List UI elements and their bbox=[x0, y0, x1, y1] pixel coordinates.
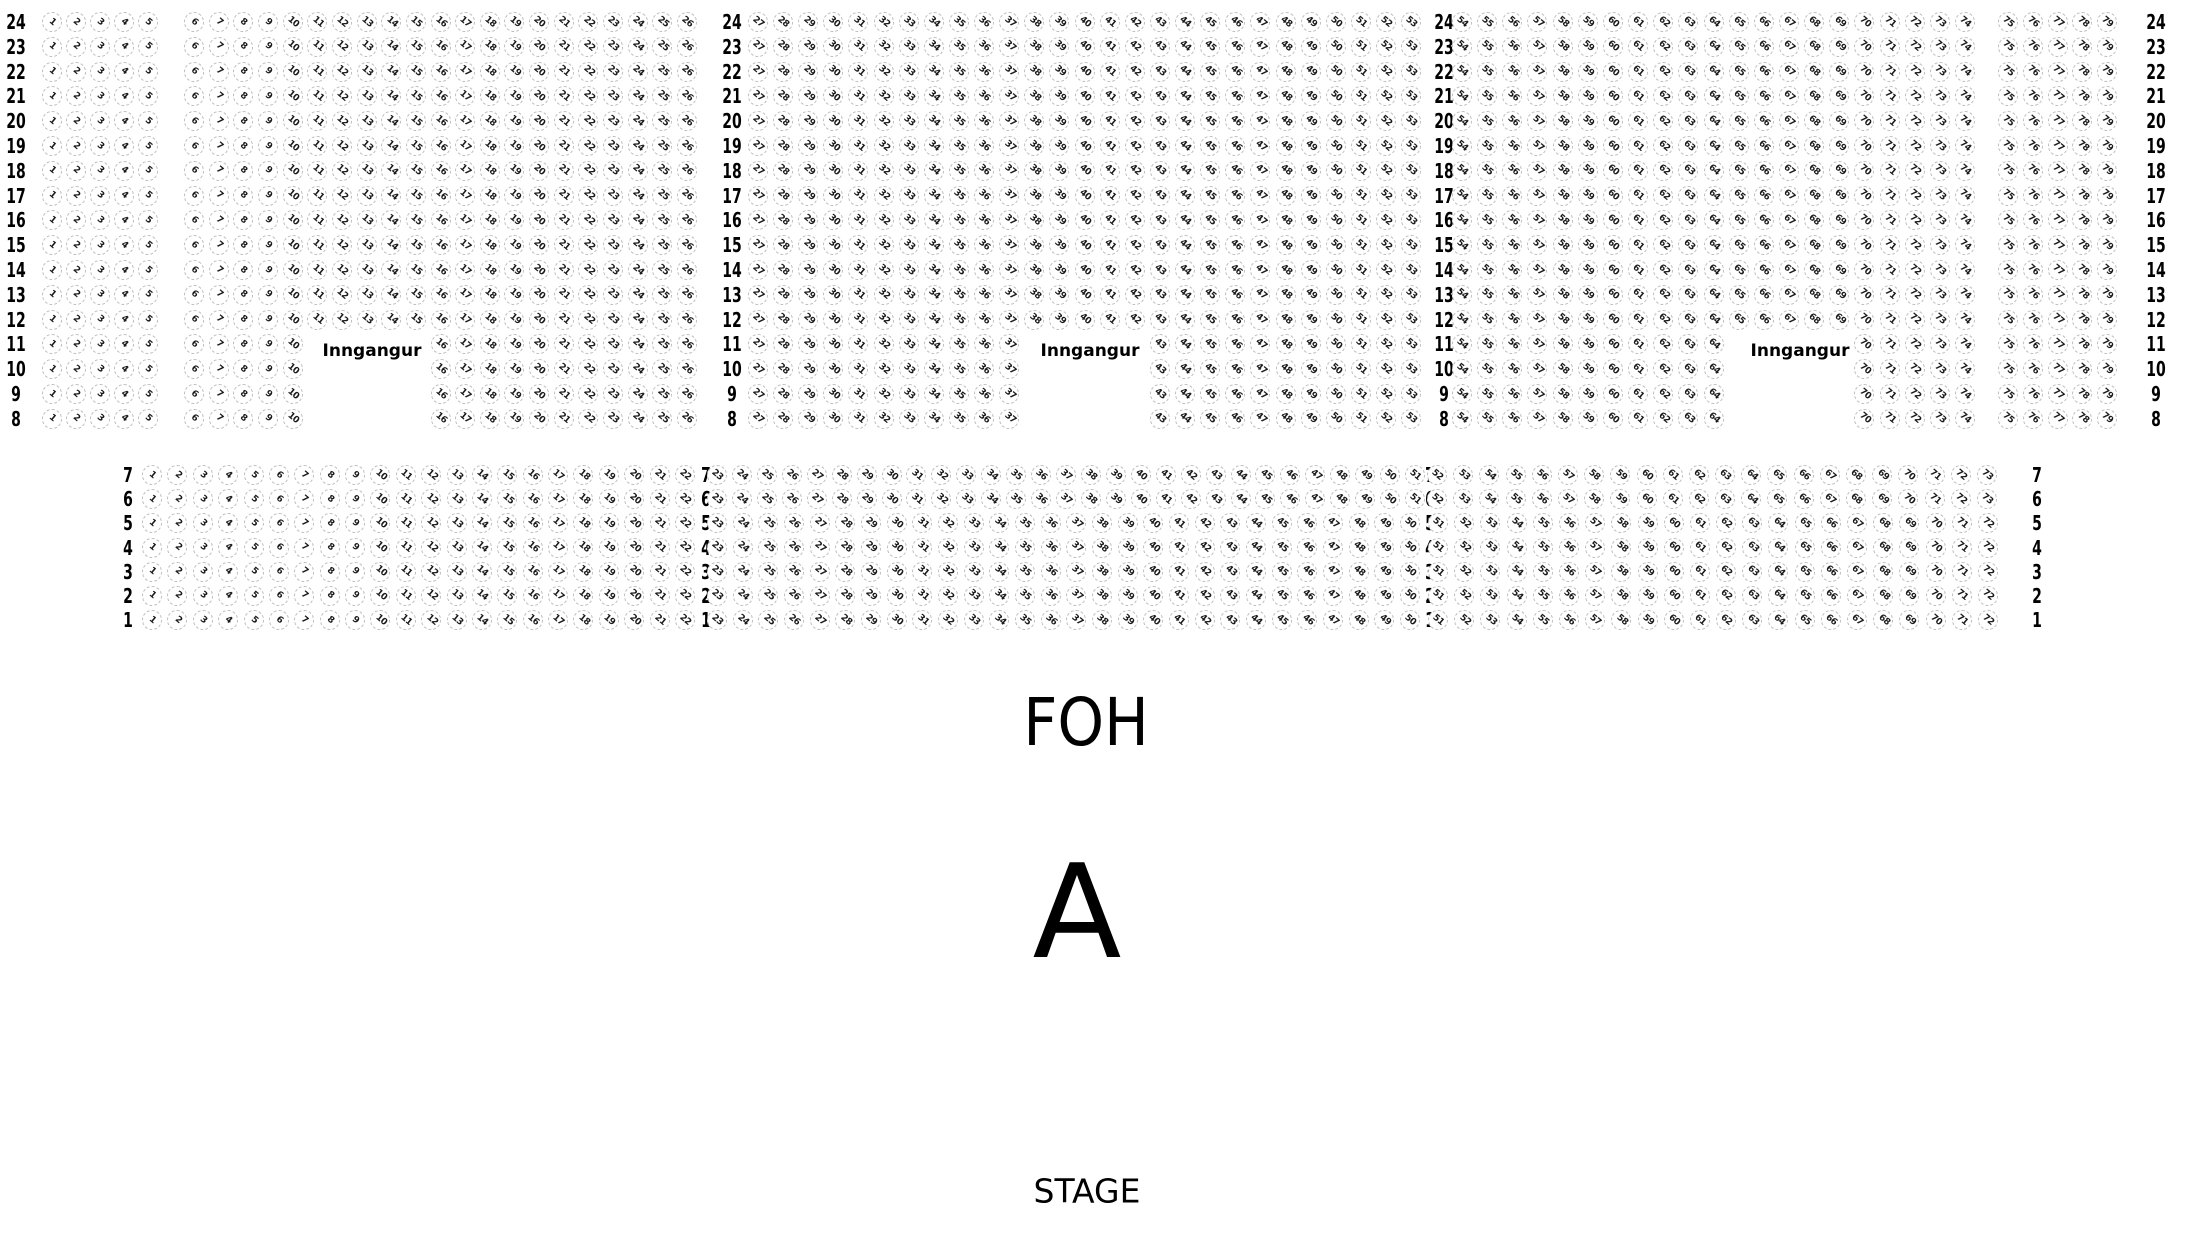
seat[interactable]: 9 bbox=[258, 359, 278, 379]
seat[interactable]: 32 bbox=[874, 334, 894, 354]
seat[interactable]: 40 bbox=[1143, 538, 1163, 558]
seat[interactable]: 21 bbox=[554, 359, 574, 379]
seat[interactable]: 32 bbox=[874, 186, 894, 206]
seat[interactable]: 51 bbox=[1351, 260, 1371, 280]
seat[interactable]: 75 bbox=[1998, 285, 2018, 305]
seat[interactable]: 29 bbox=[861, 538, 881, 558]
seat[interactable]: 66 bbox=[1821, 538, 1841, 558]
seat[interactable]: 64 bbox=[1741, 465, 1761, 485]
seat[interactable]: 19 bbox=[599, 586, 619, 606]
seat[interactable]: 73 bbox=[1930, 86, 1950, 106]
seat[interactable]: 17 bbox=[455, 136, 475, 156]
seat[interactable]: 40 bbox=[1143, 586, 1163, 606]
seat[interactable]: 1 bbox=[42, 161, 62, 181]
seat[interactable]: 65 bbox=[1729, 235, 1749, 255]
seat[interactable]: 13 bbox=[357, 62, 377, 82]
seat[interactable]: 37 bbox=[999, 161, 1019, 181]
seat[interactable]: 79 bbox=[2097, 235, 2117, 255]
seat[interactable]: 76 bbox=[2023, 86, 2043, 106]
seat[interactable]: 59 bbox=[1578, 260, 1598, 280]
seat[interactable]: 67 bbox=[1847, 513, 1867, 533]
seat[interactable]: 63 bbox=[1678, 285, 1698, 305]
seat[interactable]: 69 bbox=[1899, 513, 1919, 533]
seat[interactable]: 26 bbox=[677, 334, 697, 354]
seat[interactable]: 32 bbox=[874, 161, 894, 181]
seat[interactable]: 22 bbox=[578, 86, 598, 106]
seat[interactable]: 79 bbox=[2097, 260, 2117, 280]
seat[interactable]: 20 bbox=[624, 586, 644, 606]
seat[interactable]: 70 bbox=[1854, 12, 1874, 32]
seat[interactable]: 52 bbox=[1454, 538, 1474, 558]
seat[interactable]: 73 bbox=[1930, 235, 1950, 255]
seat[interactable]: 49 bbox=[1301, 310, 1321, 330]
seat[interactable]: 3 bbox=[90, 260, 110, 280]
seat[interactable]: 43 bbox=[1220, 586, 1240, 606]
seat[interactable]: 67 bbox=[1779, 210, 1799, 230]
seat[interactable]: 47 bbox=[1250, 111, 1270, 131]
seat[interactable]: 50 bbox=[1400, 562, 1420, 582]
seat[interactable]: 2 bbox=[167, 489, 187, 509]
seat[interactable]: 5 bbox=[244, 610, 264, 630]
seat[interactable]: 24 bbox=[628, 136, 648, 156]
seat[interactable]: 51 bbox=[1351, 111, 1371, 131]
seat[interactable]: 30 bbox=[882, 489, 902, 509]
seat[interactable]: 13 bbox=[357, 12, 377, 32]
seat[interactable]: 52 bbox=[1376, 12, 1396, 32]
seat[interactable]: 10 bbox=[283, 62, 303, 82]
seat[interactable]: 30 bbox=[823, 12, 843, 32]
seat[interactable]: 66 bbox=[1754, 62, 1774, 82]
seat[interactable]: 24 bbox=[628, 12, 648, 32]
seat[interactable]: 60 bbox=[1603, 310, 1623, 330]
seat[interactable]: 66 bbox=[1794, 489, 1814, 509]
seat[interactable]: 22 bbox=[578, 12, 598, 32]
seat[interactable]: 67 bbox=[1779, 186, 1799, 206]
seat[interactable]: 56 bbox=[1559, 610, 1579, 630]
seat[interactable]: 23 bbox=[603, 111, 623, 131]
seat[interactable]: 24 bbox=[733, 513, 753, 533]
seat[interactable]: 55 bbox=[1533, 538, 1553, 558]
seat[interactable]: 8 bbox=[320, 465, 340, 485]
seat[interactable]: 39 bbox=[1049, 136, 1069, 156]
seat[interactable]: 50 bbox=[1400, 586, 1420, 606]
seat[interactable]: 3 bbox=[90, 235, 110, 255]
seat[interactable]: 3 bbox=[90, 62, 110, 82]
seat[interactable]: 46 bbox=[1225, 260, 1245, 280]
seat[interactable]: 57 bbox=[1585, 538, 1605, 558]
seat[interactable]: 65 bbox=[1729, 12, 1749, 32]
seat[interactable]: 31 bbox=[912, 513, 932, 533]
seat[interactable]: 24 bbox=[628, 384, 648, 404]
seat[interactable]: 21 bbox=[554, 111, 574, 131]
seat[interactable]: 58 bbox=[1611, 513, 1631, 533]
seat[interactable]: 2 bbox=[66, 260, 86, 280]
seat[interactable]: 29 bbox=[798, 210, 818, 230]
seat[interactable]: 51 bbox=[1428, 538, 1448, 558]
seat[interactable]: 77 bbox=[2048, 86, 2068, 106]
seat[interactable]: 70 bbox=[1854, 260, 1874, 280]
seat[interactable]: 53 bbox=[1480, 513, 1500, 533]
seat[interactable]: 50 bbox=[1326, 334, 1346, 354]
seat[interactable]: 30 bbox=[823, 186, 843, 206]
seat[interactable]: 51 bbox=[1351, 37, 1371, 57]
seat[interactable]: 18 bbox=[480, 136, 500, 156]
seat[interactable]: 21 bbox=[554, 260, 574, 280]
seat[interactable]: 34 bbox=[924, 62, 944, 82]
seat[interactable]: 10 bbox=[283, 136, 303, 156]
seat[interactable]: 71 bbox=[1952, 586, 1972, 606]
seat[interactable]: 45 bbox=[1200, 285, 1220, 305]
seat[interactable]: 73 bbox=[1977, 489, 1997, 509]
seat[interactable]: 34 bbox=[924, 136, 944, 156]
seat[interactable]: 72 bbox=[1905, 186, 1925, 206]
seat[interactable]: 66 bbox=[1821, 562, 1841, 582]
seat[interactable]: 20 bbox=[529, 111, 549, 131]
seat[interactable]: 69 bbox=[1829, 111, 1849, 131]
seat[interactable]: 6 bbox=[184, 409, 204, 429]
seat[interactable]: 32 bbox=[874, 62, 894, 82]
seat[interactable]: 75 bbox=[1998, 409, 2018, 429]
seat[interactable]: 35 bbox=[1015, 586, 1035, 606]
seat[interactable]: 26 bbox=[677, 210, 697, 230]
seat[interactable]: 70 bbox=[1854, 409, 1874, 429]
seat[interactable]: 6 bbox=[184, 186, 204, 206]
seat[interactable]: 44 bbox=[1175, 409, 1195, 429]
seat[interactable]: 31 bbox=[848, 136, 868, 156]
seat[interactable]: 62 bbox=[1653, 285, 1673, 305]
seat[interactable]: 36 bbox=[1041, 562, 1061, 582]
seat[interactable]: 46 bbox=[1280, 465, 1300, 485]
seat[interactable]: 49 bbox=[1301, 260, 1321, 280]
seat[interactable]: 73 bbox=[1930, 12, 1950, 32]
seat[interactable]: 63 bbox=[1678, 260, 1698, 280]
seat[interactable]: 37 bbox=[999, 111, 1019, 131]
seat[interactable]: 59 bbox=[1638, 586, 1658, 606]
seat[interactable]: 27 bbox=[748, 210, 768, 230]
seat[interactable]: 33 bbox=[899, 186, 919, 206]
seat[interactable]: 8 bbox=[233, 210, 253, 230]
seat[interactable]: 18 bbox=[480, 409, 500, 429]
seat[interactable]: 53 bbox=[1480, 538, 1500, 558]
seat[interactable]: 36 bbox=[974, 384, 994, 404]
seat[interactable]: 73 bbox=[1930, 384, 1950, 404]
seat[interactable]: 18 bbox=[480, 111, 500, 131]
seat[interactable]: 60 bbox=[1664, 562, 1684, 582]
seat[interactable]: 34 bbox=[989, 562, 1009, 582]
seat[interactable]: 69 bbox=[1872, 489, 1892, 509]
seat[interactable]: 70 bbox=[1854, 161, 1874, 181]
seat[interactable]: 41 bbox=[1100, 186, 1120, 206]
seat[interactable]: 40 bbox=[1075, 12, 1095, 32]
seat[interactable]: 48 bbox=[1276, 409, 1296, 429]
seat[interactable]: 21 bbox=[650, 513, 670, 533]
seat[interactable]: 50 bbox=[1400, 538, 1420, 558]
seat[interactable]: 73 bbox=[1930, 334, 1950, 354]
seat[interactable]: 34 bbox=[924, 12, 944, 32]
seat[interactable]: 67 bbox=[1779, 235, 1799, 255]
seat[interactable]: 53 bbox=[1401, 62, 1421, 82]
seat[interactable]: 19 bbox=[504, 210, 524, 230]
seat[interactable]: 57 bbox=[1527, 384, 1547, 404]
seat[interactable]: 39 bbox=[1118, 513, 1138, 533]
seat[interactable]: 47 bbox=[1323, 538, 1343, 558]
seat[interactable]: 45 bbox=[1200, 86, 1220, 106]
seat[interactable]: 25 bbox=[652, 384, 672, 404]
seat[interactable]: 65 bbox=[1729, 310, 1749, 330]
seat[interactable]: 11 bbox=[307, 62, 327, 82]
seat[interactable]: 9 bbox=[258, 384, 278, 404]
seat[interactable]: 15 bbox=[406, 186, 426, 206]
seat[interactable]: 46 bbox=[1225, 62, 1245, 82]
seat[interactable]: 23 bbox=[603, 384, 623, 404]
seat[interactable]: 3 bbox=[90, 334, 110, 354]
seat[interactable]: 9 bbox=[345, 538, 365, 558]
seat[interactable]: 61 bbox=[1628, 136, 1648, 156]
seat[interactable]: 19 bbox=[599, 562, 619, 582]
seat[interactable]: 75 bbox=[1998, 136, 2018, 156]
seat[interactable]: 55 bbox=[1477, 235, 1497, 255]
seat[interactable]: 5 bbox=[138, 136, 158, 156]
seat[interactable]: 6 bbox=[184, 161, 204, 181]
seat[interactable]: 22 bbox=[578, 210, 598, 230]
seat[interactable]: 38 bbox=[1092, 586, 1112, 606]
seat[interactable]: 32 bbox=[874, 359, 894, 379]
seat[interactable]: 1 bbox=[42, 235, 62, 255]
seat[interactable]: 65 bbox=[1729, 62, 1749, 82]
seat[interactable]: 19 bbox=[599, 513, 619, 533]
seat[interactable]: 37 bbox=[999, 334, 1019, 354]
seat[interactable]: 22 bbox=[578, 235, 598, 255]
seat[interactable]: 14 bbox=[381, 210, 401, 230]
seat[interactable]: 8 bbox=[320, 562, 340, 582]
seat[interactable]: 2 bbox=[167, 513, 187, 533]
seat[interactable]: 11 bbox=[307, 86, 327, 106]
seat[interactable]: 56 bbox=[1502, 235, 1522, 255]
seat[interactable]: 46 bbox=[1280, 489, 1300, 509]
seat[interactable]: 38 bbox=[1024, 62, 1044, 82]
seat[interactable]: 31 bbox=[848, 359, 868, 379]
seat[interactable]: 57 bbox=[1527, 161, 1547, 181]
seat[interactable]: 7 bbox=[294, 513, 314, 533]
seat[interactable]: 44 bbox=[1175, 161, 1195, 181]
seat[interactable]: 79 bbox=[2097, 12, 2117, 32]
seat[interactable]: 18 bbox=[480, 334, 500, 354]
seat[interactable]: 69 bbox=[1829, 285, 1849, 305]
seat[interactable]: 20 bbox=[624, 562, 644, 582]
seat[interactable]: 33 bbox=[899, 334, 919, 354]
seat[interactable]: 50 bbox=[1326, 285, 1346, 305]
seat[interactable]: 78 bbox=[2072, 334, 2092, 354]
seat[interactable]: 17 bbox=[455, 260, 475, 280]
seat[interactable]: 43 bbox=[1150, 334, 1170, 354]
seat[interactable]: 42 bbox=[1125, 161, 1145, 181]
seat[interactable]: 8 bbox=[233, 409, 253, 429]
seat[interactable]: 37 bbox=[1066, 586, 1086, 606]
seat[interactable]: 5 bbox=[244, 513, 264, 533]
seat[interactable]: 10 bbox=[283, 186, 303, 206]
seat[interactable]: 68 bbox=[1804, 260, 1824, 280]
seat[interactable]: 67 bbox=[1847, 586, 1867, 606]
seat[interactable]: 40 bbox=[1131, 465, 1151, 485]
seat[interactable]: 29 bbox=[798, 136, 818, 156]
seat[interactable]: 54 bbox=[1507, 538, 1527, 558]
seat[interactable]: 58 bbox=[1553, 62, 1573, 82]
seat[interactable]: 35 bbox=[1006, 489, 1026, 509]
seat[interactable]: 18 bbox=[573, 513, 593, 533]
seat[interactable]: 35 bbox=[949, 285, 969, 305]
seat[interactable]: 26 bbox=[677, 359, 697, 379]
seat[interactable]: 29 bbox=[861, 586, 881, 606]
seat[interactable]: 21 bbox=[554, 210, 574, 230]
seat[interactable]: 59 bbox=[1578, 136, 1598, 156]
seat[interactable]: 22 bbox=[675, 538, 695, 558]
seat[interactable]: 56 bbox=[1532, 489, 1552, 509]
seat[interactable]: 56 bbox=[1502, 310, 1522, 330]
seat[interactable]: 47 bbox=[1323, 586, 1343, 606]
seat[interactable]: 70 bbox=[1926, 586, 1946, 606]
seat[interactable]: 28 bbox=[835, 610, 855, 630]
seat[interactable]: 42 bbox=[1125, 285, 1145, 305]
seat[interactable]: 10 bbox=[370, 513, 390, 533]
seat[interactable]: 59 bbox=[1638, 513, 1658, 533]
seat[interactable]: 38 bbox=[1024, 310, 1044, 330]
seat[interactable]: 10 bbox=[283, 359, 303, 379]
seat[interactable]: 6 bbox=[184, 37, 204, 57]
seat[interactable]: 52 bbox=[1376, 161, 1396, 181]
seat[interactable]: 71 bbox=[1880, 310, 1900, 330]
seat[interactable]: 4 bbox=[114, 186, 134, 206]
seat[interactable]: 49 bbox=[1301, 161, 1321, 181]
seat[interactable]: 75 bbox=[1998, 334, 2018, 354]
seat[interactable]: 50 bbox=[1326, 409, 1346, 429]
seat[interactable]: 37 bbox=[1066, 562, 1086, 582]
seat[interactable]: 22 bbox=[578, 62, 598, 82]
seat[interactable]: 15 bbox=[406, 37, 426, 57]
seat[interactable]: 57 bbox=[1527, 86, 1547, 106]
seat[interactable]: 38 bbox=[1081, 465, 1101, 485]
seat[interactable]: 28 bbox=[773, 384, 793, 404]
seat[interactable]: 19 bbox=[504, 186, 524, 206]
seat[interactable]: 3 bbox=[90, 161, 110, 181]
seat[interactable]: 17 bbox=[455, 285, 475, 305]
seat[interactable]: 30 bbox=[823, 409, 843, 429]
seat[interactable]: 43 bbox=[1220, 538, 1240, 558]
seat[interactable]: 49 bbox=[1301, 62, 1321, 82]
seat[interactable]: 42 bbox=[1125, 186, 1145, 206]
seat[interactable]: 27 bbox=[748, 409, 768, 429]
seat[interactable]: 70 bbox=[1854, 384, 1874, 404]
seat[interactable]: 25 bbox=[652, 37, 672, 57]
seat[interactable]: 12 bbox=[332, 161, 352, 181]
seat[interactable]: 47 bbox=[1250, 359, 1270, 379]
seat[interactable]: 65 bbox=[1767, 489, 1787, 509]
seat[interactable]: 36 bbox=[1041, 610, 1061, 630]
seat[interactable]: 66 bbox=[1754, 12, 1774, 32]
seat[interactable]: 78 bbox=[2072, 409, 2092, 429]
seat[interactable]: 53 bbox=[1401, 86, 1421, 106]
seat[interactable]: 77 bbox=[2048, 334, 2068, 354]
seat[interactable]: 7 bbox=[209, 235, 229, 255]
seat[interactable]: 35 bbox=[1015, 610, 1035, 630]
seat[interactable]: 48 bbox=[1276, 334, 1296, 354]
seat[interactable]: 53 bbox=[1401, 334, 1421, 354]
seat[interactable]: 40 bbox=[1075, 161, 1095, 181]
seat[interactable]: 35 bbox=[949, 136, 969, 156]
seat[interactable]: 1 bbox=[42, 186, 62, 206]
seat[interactable]: 49 bbox=[1355, 489, 1375, 509]
seat[interactable]: 11 bbox=[307, 260, 327, 280]
seat[interactable]: 40 bbox=[1075, 86, 1095, 106]
seat[interactable]: 66 bbox=[1754, 210, 1774, 230]
seat[interactable]: 23 bbox=[603, 359, 623, 379]
seat[interactable]: 59 bbox=[1578, 334, 1598, 354]
seat[interactable]: 31 bbox=[906, 465, 926, 485]
seat[interactable]: 30 bbox=[887, 562, 907, 582]
seat[interactable]: 3 bbox=[90, 310, 110, 330]
seat[interactable]: 4 bbox=[114, 136, 134, 156]
seat[interactable]: 53 bbox=[1480, 562, 1500, 582]
seat[interactable]: 8 bbox=[233, 260, 253, 280]
seat[interactable]: 6 bbox=[269, 538, 289, 558]
seat[interactable]: 41 bbox=[1100, 210, 1120, 230]
seat[interactable]: 50 bbox=[1326, 62, 1346, 82]
seat[interactable]: 50 bbox=[1326, 310, 1346, 330]
seat[interactable]: 65 bbox=[1729, 37, 1749, 57]
seat[interactable]: 13 bbox=[447, 586, 467, 606]
seat[interactable]: 1 bbox=[142, 489, 162, 509]
seat[interactable]: 46 bbox=[1297, 538, 1317, 558]
seat[interactable]: 45 bbox=[1200, 161, 1220, 181]
seat[interactable]: 71 bbox=[1880, 210, 1900, 230]
seat[interactable]: 45 bbox=[1255, 489, 1275, 509]
seat[interactable]: 45 bbox=[1200, 12, 1220, 32]
seat[interactable]: 13 bbox=[357, 260, 377, 280]
seat[interactable]: 64 bbox=[1704, 86, 1724, 106]
seat[interactable]: 21 bbox=[554, 384, 574, 404]
seat[interactable]: 16 bbox=[431, 12, 451, 32]
seat[interactable]: 16 bbox=[431, 161, 451, 181]
seat[interactable]: 65 bbox=[1729, 186, 1749, 206]
seat[interactable]: 48 bbox=[1349, 610, 1369, 630]
seat[interactable]: 19 bbox=[504, 384, 524, 404]
seat[interactable]: 2 bbox=[66, 161, 86, 181]
seat[interactable]: 44 bbox=[1246, 562, 1266, 582]
seat[interactable]: 42 bbox=[1125, 310, 1145, 330]
seat[interactable]: 8 bbox=[320, 513, 340, 533]
seat[interactable]: 58 bbox=[1611, 586, 1631, 606]
seat[interactable]: 35 bbox=[949, 12, 969, 32]
seat[interactable]: 55 bbox=[1477, 210, 1497, 230]
seat[interactable]: 48 bbox=[1349, 562, 1369, 582]
seat[interactable]: 9 bbox=[258, 136, 278, 156]
seat[interactable]: 56 bbox=[1502, 384, 1522, 404]
seat[interactable]: 56 bbox=[1532, 465, 1552, 485]
seat[interactable]: 52 bbox=[1376, 260, 1396, 280]
seat[interactable]: 63 bbox=[1742, 610, 1762, 630]
seat[interactable]: 18 bbox=[573, 465, 593, 485]
seat[interactable]: 38 bbox=[1024, 186, 1044, 206]
seat[interactable]: 15 bbox=[406, 12, 426, 32]
seat[interactable]: 75 bbox=[1998, 186, 2018, 206]
seat[interactable]: 27 bbox=[748, 136, 768, 156]
seat[interactable]: 28 bbox=[835, 562, 855, 582]
seat[interactable]: 10 bbox=[283, 235, 303, 255]
seat[interactable]: 79 bbox=[2097, 310, 2117, 330]
seat[interactable]: 69 bbox=[1829, 12, 1849, 32]
seat[interactable]: 61 bbox=[1690, 538, 1710, 558]
seat[interactable]: 78 bbox=[2072, 310, 2092, 330]
seat[interactable]: 59 bbox=[1578, 111, 1598, 131]
